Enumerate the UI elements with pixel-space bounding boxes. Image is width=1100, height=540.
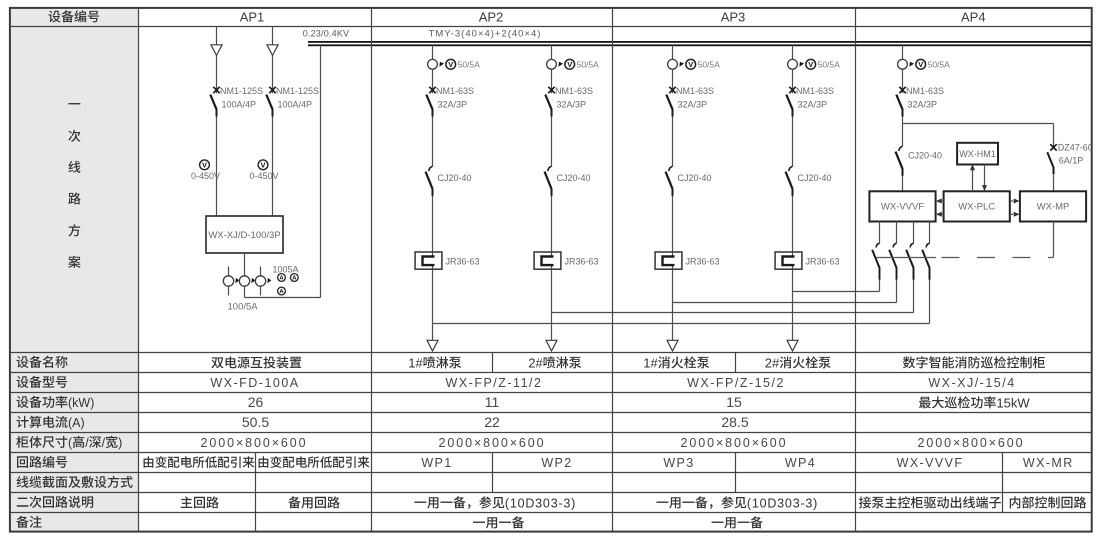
svg-text:NM1-125S: NM1-125S <box>220 86 263 96</box>
svg-text:2000×800×600: 2000×800×600 <box>201 436 308 450</box>
svg-text:32A/3P: 32A/3P <box>798 100 828 110</box>
svg-text:JR36-63: JR36-63 <box>806 257 840 267</box>
svg-text:15: 15 <box>726 394 742 410</box>
svg-text:JR36-63: JR36-63 <box>565 257 599 267</box>
svg-text:100/5A: 100/5A <box>228 302 259 313</box>
svg-text:NM1-63S: NM1-63S <box>796 86 834 96</box>
svg-text:CJ20-40: CJ20-40 <box>798 173 832 183</box>
svg-text:22: 22 <box>484 414 500 430</box>
svg-text:32A/3P: 32A/3P <box>678 100 708 110</box>
svg-text:NM1-63S: NM1-63S <box>555 86 593 96</box>
svg-text:2000×800×600: 2000×800×600 <box>918 436 1025 450</box>
svg-text:100A/4P: 100A/4P <box>278 100 313 110</box>
svg-text:WX-XJ/-15/4: WX-XJ/-15/4 <box>928 376 1015 390</box>
svg-text:6A/1P: 6A/1P <box>1059 155 1084 165</box>
svg-text:JR36-63: JR36-63 <box>446 257 480 267</box>
svg-text:V: V <box>202 161 207 170</box>
svg-text:32A/3P: 32A/3P <box>908 100 938 110</box>
svg-text:WX-XJ/D-100/3P: WX-XJ/D-100/3P <box>208 230 280 241</box>
svg-text:11: 11 <box>485 394 500 410</box>
svg-text:V: V <box>260 161 265 170</box>
svg-text:50/5A: 50/5A <box>698 60 721 70</box>
svg-text:(10D303-3): (10D303-3) <box>505 496 576 510</box>
svg-text:100A/4P: 100A/4P <box>222 100 257 110</box>
svg-text:WX-VVVF: WX-VVVF <box>897 456 964 470</box>
svg-text:28.5: 28.5 <box>721 414 748 430</box>
svg-text:WP1: WP1 <box>421 456 452 470</box>
svg-text:50/5A: 50/5A <box>928 60 951 70</box>
svg-text:JR36-63: JR36-63 <box>686 257 720 267</box>
svg-text:(10D303-3): (10D303-3) <box>747 496 818 510</box>
svg-text:2000×800×600: 2000×800×600 <box>439 436 546 450</box>
svg-text:WP3: WP3 <box>663 456 694 470</box>
svg-text:WX-HM1: WX-HM1 <box>959 149 996 159</box>
svg-text:WX-MP: WX-MP <box>1037 202 1070 213</box>
svg-text:50/5A: 50/5A <box>458 60 481 70</box>
svg-text:V: V <box>688 60 693 69</box>
svg-text:2#: 2# <box>528 355 543 370</box>
svg-text:(A): (A) <box>68 416 85 430</box>
svg-text:WP4: WP4 <box>785 456 816 470</box>
svg-text:WX-FP/Z-11/2: WX-FP/Z-11/2 <box>446 376 543 390</box>
svg-text:50.5: 50.5 <box>242 414 269 430</box>
svg-text:WP2: WP2 <box>541 456 572 470</box>
svg-text:/: / <box>85 436 89 450</box>
svg-text:1#: 1# <box>408 355 423 370</box>
svg-text:DZ47-60: DZ47-60 <box>1058 143 1093 153</box>
svg-text:0.23/0.4KV: 0.23/0.4KV <box>303 29 350 39</box>
svg-text:(kW): (kW) <box>68 396 94 410</box>
svg-text:15kW: 15kW <box>996 395 1030 410</box>
svg-text:NM1-63S: NM1-63S <box>906 86 944 96</box>
svg-text:AP3: AP3 <box>721 10 746 25</box>
svg-text:0-450V: 0-450V <box>249 171 278 181</box>
svg-text:V: V <box>918 60 923 69</box>
svg-text:AP4: AP4 <box>961 10 986 25</box>
svg-text:AP2: AP2 <box>479 10 504 25</box>
svg-text:0-450V: 0-450V <box>191 171 220 181</box>
svg-text:32A/3P: 32A/3P <box>438 100 468 110</box>
svg-text:): ) <box>118 436 122 450</box>
svg-text:WX-FD-100A: WX-FD-100A <box>210 376 299 390</box>
svg-text:WX-VVVF: WX-VVVF <box>881 202 924 213</box>
svg-text:NM1-63S: NM1-63S <box>436 86 474 96</box>
svg-text:32A/3P: 32A/3P <box>557 100 587 110</box>
svg-text:WX-MR: WX-MR <box>1023 456 1074 470</box>
svg-text:V: V <box>808 60 813 69</box>
svg-text:26: 26 <box>248 394 264 410</box>
svg-text:CJ20-40: CJ20-40 <box>557 173 591 183</box>
svg-text:NM1-63S: NM1-63S <box>676 86 714 96</box>
svg-text:50/5A: 50/5A <box>818 60 841 70</box>
svg-text:2000×800×600: 2000×800×600 <box>681 436 788 450</box>
svg-text:NM1-125S: NM1-125S <box>276 86 319 96</box>
svg-text:AP1: AP1 <box>240 10 265 25</box>
svg-text:1#: 1# <box>643 355 658 370</box>
svg-text:CJ20-40: CJ20-40 <box>908 151 942 161</box>
svg-text:50/5A: 50/5A <box>577 60 600 70</box>
svg-text:TMY-3(40×4)+2(40×4): TMY-3(40×4)+2(40×4) <box>429 29 542 40</box>
svg-text:WX-PLC: WX-PLC <box>958 202 995 213</box>
svg-text:CJ20-40: CJ20-40 <box>438 173 472 183</box>
svg-text:/: / <box>102 436 106 450</box>
svg-text:2#: 2# <box>765 355 780 370</box>
svg-text:V: V <box>567 60 572 69</box>
svg-text:WX-FP/Z-15/2: WX-FP/Z-15/2 <box>687 376 785 390</box>
svg-text:V: V <box>448 60 453 69</box>
svg-text:CJ20-40: CJ20-40 <box>678 173 712 183</box>
